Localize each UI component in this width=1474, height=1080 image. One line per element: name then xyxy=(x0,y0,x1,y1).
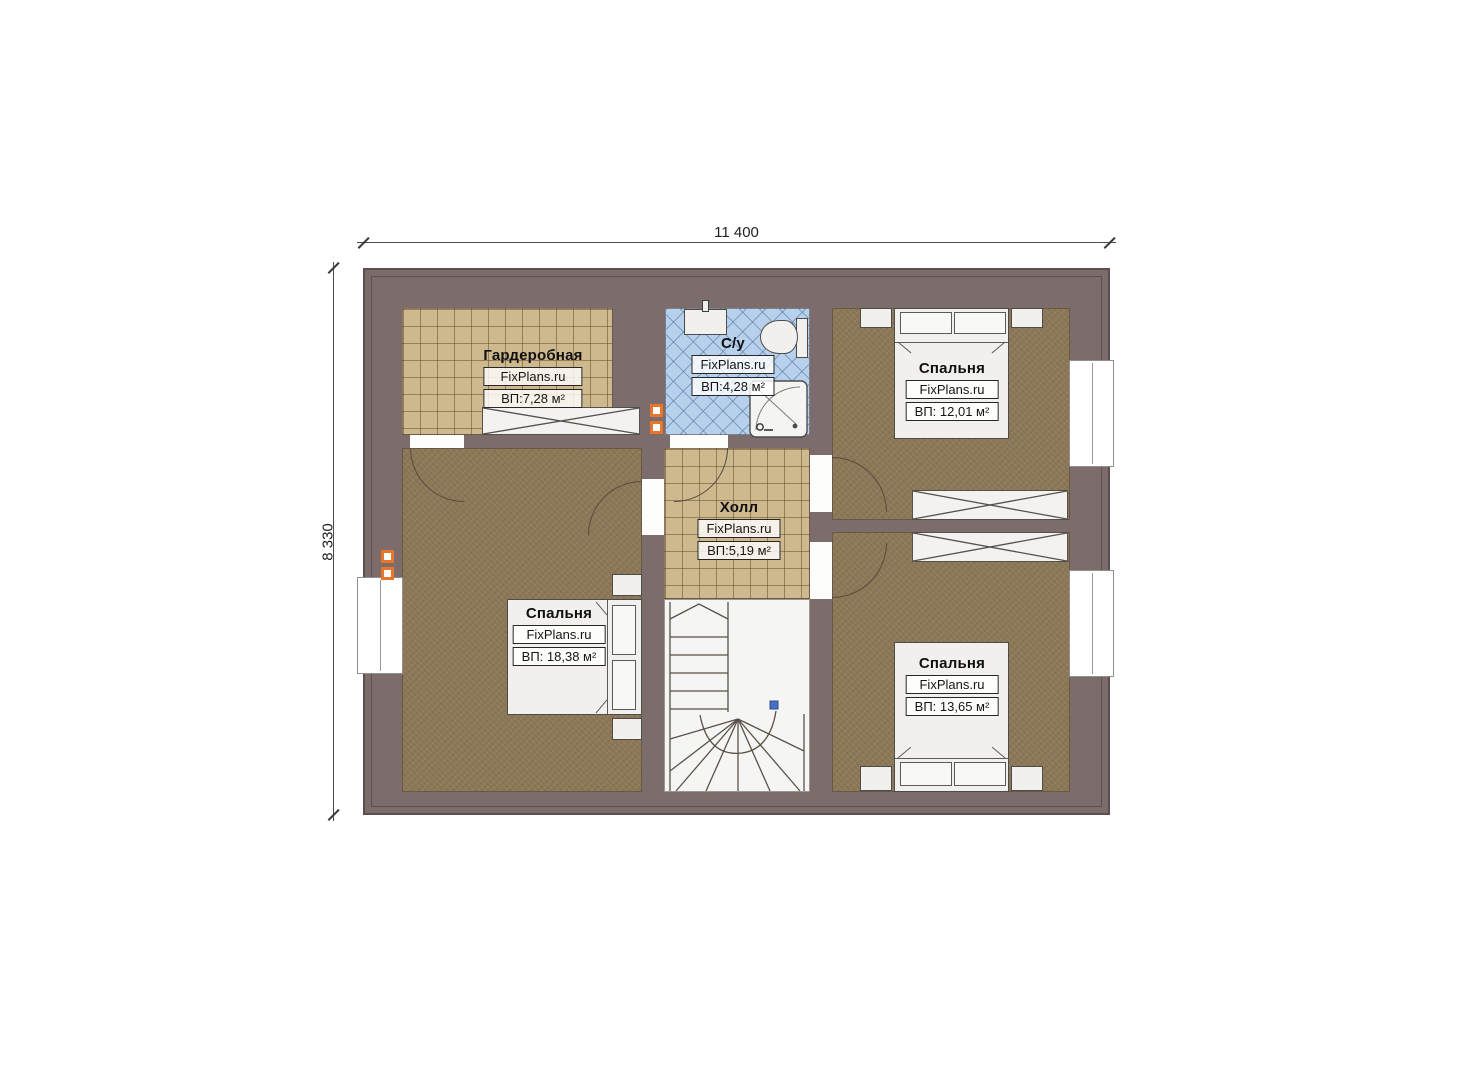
window xyxy=(357,577,403,674)
room-name: Спальня xyxy=(906,360,999,377)
blanket-line xyxy=(607,600,608,714)
watermark-label: FixPlans.ru xyxy=(906,675,999,694)
nightstand xyxy=(612,718,642,740)
pillow xyxy=(900,312,952,334)
nightstand xyxy=(860,308,892,328)
door-opening xyxy=(670,435,728,448)
nightstand xyxy=(860,766,892,791)
window-mullion xyxy=(380,580,381,671)
room-name: Холл xyxy=(697,499,780,516)
nightstand xyxy=(1011,308,1043,328)
window xyxy=(1069,360,1114,467)
room-label-wardrobe: Гардеробная FixPlans.ru ВП:7,28 м² xyxy=(483,347,582,408)
vent-marker-icon xyxy=(381,550,394,563)
blanket-line xyxy=(895,342,1008,343)
floor-plan-canvas: 11 400 8 330 xyxy=(0,0,1474,1080)
stair-direction-marker xyxy=(770,701,778,709)
room-name: Спальня xyxy=(513,605,606,622)
faucet-icon xyxy=(702,300,709,312)
vent-marker-icon xyxy=(650,421,663,434)
pillow xyxy=(612,660,636,710)
pillow xyxy=(954,312,1006,334)
pillow xyxy=(954,762,1006,786)
room-area: ВП: 13,65 м² xyxy=(906,697,999,716)
room-area: ВП:5,19 м² xyxy=(697,541,780,560)
sink-icon xyxy=(684,309,727,335)
cross-lines-icon xyxy=(913,491,1067,519)
room-label-bedroom-left: Спальня FixPlans.ru ВП: 18,38 м² xyxy=(513,605,606,666)
watermark-label: FixPlans.ru xyxy=(906,380,999,399)
door-opening xyxy=(410,435,464,448)
room-area: ВП: 12,01 м² xyxy=(906,402,999,421)
dimension-line xyxy=(357,242,1116,243)
room-label-bathroom: С/у FixPlans.ru ВП:4,28 м² xyxy=(691,335,774,396)
room-area: ВП: 18,38 м² xyxy=(513,647,606,666)
room-name: С/у xyxy=(691,335,774,352)
window-mullion xyxy=(1092,363,1093,464)
dimension-label: 8 330 xyxy=(319,523,336,561)
nightstand xyxy=(612,574,642,596)
room-name: Спальня xyxy=(906,655,999,672)
dimension-top: 11 400 xyxy=(363,224,1110,246)
room-label-bedroom-bottom-right: Спальня FixPlans.ru ВП: 13,65 м² xyxy=(906,655,999,716)
nightstand xyxy=(1011,766,1043,791)
cross-lines-icon xyxy=(483,408,639,434)
cross-lines-icon xyxy=(913,533,1067,561)
pillow xyxy=(612,605,636,655)
dimension-left: 8 330 xyxy=(318,268,342,815)
wardrobe-crossbox xyxy=(912,490,1068,520)
room-name: Гардеробная xyxy=(483,347,582,364)
watermark-label: FixPlans.ru xyxy=(513,625,606,644)
room-label-bedroom-top-right: Спальня FixPlans.ru ВП: 12,01 м² xyxy=(906,360,999,421)
pillow xyxy=(900,762,952,786)
wardrobe-crossbox xyxy=(912,532,1068,562)
plan-outline: Гардеробная FixPlans.ru ВП:7,28 м² С/у F… xyxy=(363,268,1110,815)
door-opening xyxy=(810,455,832,512)
vent-marker-icon xyxy=(650,404,663,417)
room-area: ВП:7,28 м² xyxy=(483,389,582,408)
room-area: ВП:4,28 м² xyxy=(691,377,774,396)
room-label-hall: Холл FixPlans.ru ВП:5,19 м² xyxy=(697,499,780,560)
window-mullion xyxy=(1092,573,1093,674)
staircase xyxy=(664,599,810,792)
window xyxy=(1069,570,1114,677)
wardrobe-crossbox xyxy=(482,407,640,435)
watermark-label: FixPlans.ru xyxy=(697,519,780,538)
watermark-label: FixPlans.ru xyxy=(483,367,582,386)
watermark-label: FixPlans.ru xyxy=(691,355,774,374)
door-opening xyxy=(810,542,832,599)
blanket-line xyxy=(895,758,1008,759)
dimension-label: 11 400 xyxy=(714,224,759,241)
vent-marker-icon xyxy=(381,567,394,580)
door-opening xyxy=(642,479,664,535)
